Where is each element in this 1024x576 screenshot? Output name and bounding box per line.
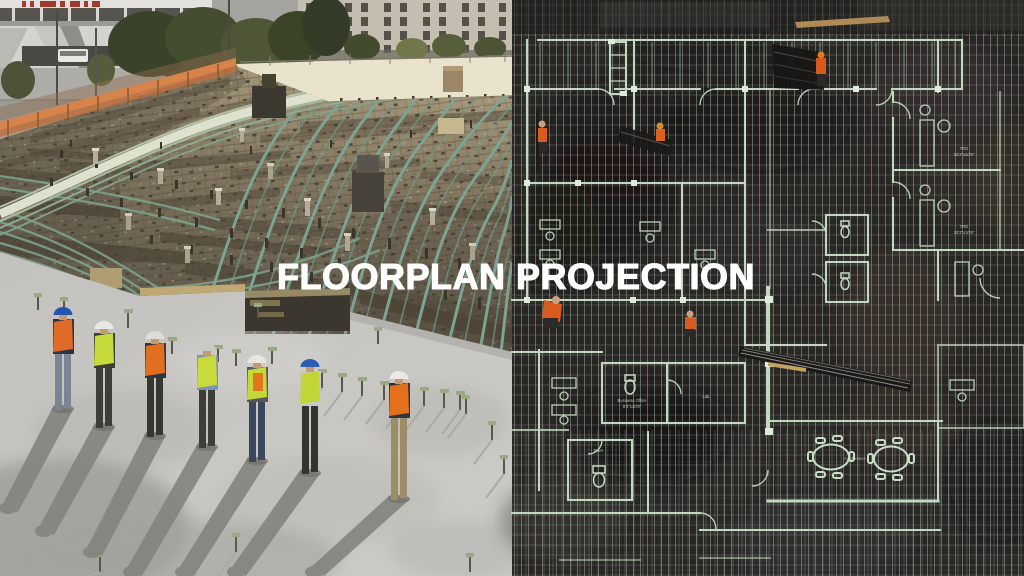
svg-text:Toilet: Toilet xyxy=(593,448,604,453)
svg-text:Conference: Conference xyxy=(844,456,866,461)
svg-text:TRD: TRD xyxy=(960,146,969,151)
svg-text:TRD: TRD xyxy=(960,224,969,229)
svg-text:10'2"x10'6": 10'2"x10'6" xyxy=(954,230,975,235)
svg-text:Business Office: Business Office xyxy=(617,398,647,403)
svg-text:8'4"x10'8": 8'4"x10'8" xyxy=(623,404,642,409)
svg-text:10'2"x10'6": 10'2"x10'6" xyxy=(954,152,975,157)
svg-text:Lab: Lab xyxy=(703,394,711,399)
